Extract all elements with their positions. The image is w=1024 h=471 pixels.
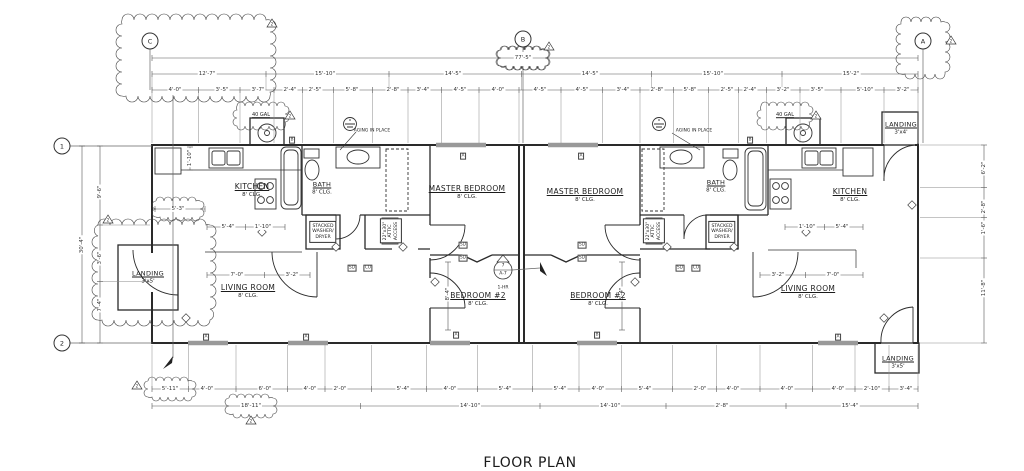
- dimension-label: 12'-7": [198, 71, 217, 77]
- room-landing-top-right-ceiling-note: 3'x4': [885, 130, 917, 136]
- dimension-label: 77'-5": [514, 55, 533, 61]
- dimension-label: 3'-2": [284, 272, 299, 278]
- window-tag: B: [747, 137, 753, 144]
- room-landing-bottom-right-label: LANDING: [882, 355, 914, 363]
- room-master-bedroom-left-ceiling-note: 8' CLG.: [429, 194, 506, 200]
- dimension-label: 4'-0": [442, 386, 457, 392]
- dimension-label: 3'-5": [809, 87, 824, 93]
- dimension-label: 3'-6": [97, 250, 103, 265]
- dimension-label: 5'-8": [682, 87, 697, 93]
- detector-tag: SD: [348, 265, 357, 272]
- room-master-bedroom-right: MASTER BEDROOM8' CLG.: [547, 187, 624, 203]
- dimension-label: 3'-4": [415, 87, 430, 93]
- room-living-room-left: LIVING ROOM8' CLG.: [221, 283, 275, 299]
- room-bath-right: BATH8' CLG.: [706, 179, 726, 194]
- dimension-label: 6'-0": [257, 386, 272, 392]
- grid-bubble-c: C: [142, 33, 159, 50]
- dimension-label: 15'-4": [841, 403, 860, 409]
- dimension-label: 3'-4": [898, 386, 913, 392]
- dimension-label: 15'-10": [314, 71, 336, 77]
- dimension-label: 7'-0": [825, 272, 840, 278]
- room-landing-bottom-right: LANDING3'x5': [882, 355, 914, 370]
- room-kitchen-right-ceiling-note: 8' CLG.: [833, 197, 868, 203]
- dimension-label: 2'-10": [863, 386, 882, 392]
- room-living-room-left-label: LIVING ROOM: [221, 283, 275, 292]
- detector-tag: SD: [459, 255, 468, 262]
- dimension-label: 4'-0": [590, 386, 605, 392]
- dimension-label: 1'-6": [981, 220, 987, 235]
- dimension-label: 4'-0": [490, 87, 505, 93]
- room-kitchen-left: KITCHEN8' CLG.: [235, 182, 270, 198]
- dimension-label: 2'-8": [714, 403, 729, 409]
- dimension-label: 3'-5": [214, 87, 229, 93]
- room-living-room-right: LIVING ROOM8' CLG.: [781, 284, 835, 300]
- dimension-label: 5'-8": [344, 87, 359, 93]
- detector-tag: SD: [676, 265, 685, 272]
- room-bath-right-label: BATH: [706, 179, 726, 187]
- note-40gal-right: 40 GAL: [776, 113, 794, 119]
- dimension-label: 4'-0": [199, 386, 214, 392]
- wall-section-marker-number: 7: [502, 263, 505, 268]
- dimension-label: 5'-11": [161, 386, 180, 392]
- revision-triangle-number: 2: [107, 218, 110, 223]
- dimension-label: 2'-8": [649, 87, 664, 93]
- window-tag: A: [203, 334, 209, 341]
- note-attic-access-right: 22"x30" ATTIC ACCESS: [643, 219, 665, 244]
- room-bedroom2-left: BEDROOM #28' CLG.: [450, 291, 506, 307]
- detector-tag: SD: [578, 242, 587, 249]
- dimension-label: 5'-4": [834, 224, 849, 230]
- dimension-label: 4'-0": [167, 87, 182, 93]
- window-tag: A: [578, 153, 584, 160]
- room-kitchen-left-label: KITCHEN: [235, 182, 270, 191]
- floor-plan-canvas: 77'-5"12'-7"15'-10"14'-5"14'-5"15'-10"15…: [0, 0, 1024, 471]
- dimension-label: 1'-10": [798, 224, 817, 230]
- room-bedroom2-right-ceiling-note: 8' CLG.: [570, 301, 626, 307]
- dimension-label: 5'-4": [220, 224, 235, 230]
- room-bath-left-ceiling-note: 8' CLG.: [312, 190, 332, 196]
- dimension-label: 2'-5": [719, 87, 734, 93]
- dimension-label: 15'-10": [702, 71, 724, 77]
- dimension-label: 2'-0": [332, 386, 347, 392]
- dimension-label: 3'-2": [775, 87, 790, 93]
- note-aging-in-place-right: AGING IN PLACE: [676, 128, 713, 133]
- window-tag: A: [460, 153, 466, 160]
- room-bath-right-ceiling-note: 8' CLG.: [706, 188, 726, 194]
- wall-section-marker-sheet: A-7: [499, 271, 506, 276]
- window-tag: B: [594, 332, 600, 339]
- room-living-room-left-ceiling-note: 8' CLG.: [221, 293, 275, 299]
- dimension-label: 3'-4": [615, 87, 630, 93]
- dimension-label: 14'-5": [581, 71, 600, 77]
- dimension-label: 2'-4": [742, 87, 757, 93]
- room-living-room-right-label: LIVING ROOM: [781, 284, 835, 293]
- room-bath-left: BATH8' CLG.: [312, 181, 332, 196]
- dimension-label: 14'-10": [599, 403, 621, 409]
- room-master-bedroom-left: MASTER BEDROOM8' CLG.: [429, 184, 506, 200]
- dimension-label: 11'-8": [981, 279, 987, 298]
- grid-bubble-b: B: [515, 31, 532, 48]
- room-landing-bottom-right-ceiling-note: 3'x5': [882, 364, 914, 370]
- room-kitchen-right-label: KITCHEN: [833, 187, 868, 196]
- revision-triangle-number: 2: [548, 45, 551, 50]
- room-master-bedroom-right-label: MASTER BEDROOM: [547, 187, 624, 196]
- window-tag: B: [289, 137, 295, 144]
- revision-triangle-number: 2: [289, 114, 292, 119]
- room-landing-left: LANDING3'x5': [132, 270, 164, 285]
- revision-triangle-number: 2: [950, 39, 953, 44]
- note-aging-in-place-left: AGING IN PLACE: [354, 128, 391, 133]
- window-tag: A: [453, 332, 459, 339]
- dimension-label: 5'-3": [170, 206, 185, 212]
- dimension-label: 3'-7": [250, 87, 265, 93]
- dimension-label: 2'-5": [307, 87, 322, 93]
- dimension-label: 5'-4": [395, 386, 410, 392]
- note-40gal-left: 40 GAL: [252, 113, 270, 119]
- window-tag: A: [835, 334, 841, 341]
- dimension-label: 15'-2": [842, 71, 861, 77]
- window-tag: A: [303, 334, 309, 341]
- revision-triangle-number: 2: [250, 419, 253, 424]
- detector-tag: SD: [459, 242, 468, 249]
- detector-tag: CO: [363, 265, 372, 272]
- dimension-label: 18'-11": [240, 403, 262, 409]
- grid-bubble-1: 1: [54, 138, 71, 155]
- room-landing-left-ceiling-note: 3'x5': [132, 279, 164, 285]
- note-washer-dryer-left: STACKED WASHER/ DRYER: [309, 221, 336, 243]
- room-bedroom2-left-ceiling-note: 8' CLG.: [450, 301, 506, 307]
- room-bedroom2-right-label: BEDROOM #2: [570, 291, 626, 300]
- dimension-label: 5'-4": [552, 386, 567, 392]
- revision-triangle-number: 2: [815, 114, 818, 119]
- room-landing-left-label: LANDING: [132, 270, 164, 278]
- dimension-label: 9'-6": [97, 184, 103, 199]
- dimension-label: 2'-0": [692, 386, 707, 392]
- grid-bubble-a: A: [915, 33, 932, 50]
- dimension-label: 2'-8": [385, 87, 400, 93]
- title-block: FLOOR PLAN SCALE: 1/4"=1'-0": [477, 452, 582, 471]
- dimension-label: 5'-4": [497, 386, 512, 392]
- labels-layer: 77'-5"12'-7"15'-10"14'-5"14'-5"15'-10"15…: [0, 0, 1024, 471]
- dimension-label: 14'-5": [444, 71, 463, 77]
- dimension-label: 30'-4": [79, 236, 85, 255]
- room-living-room-right-ceiling-note: 8' CLG.: [781, 294, 835, 300]
- dimension-label: 3'-2": [895, 87, 910, 93]
- plan-title: FLOOR PLAN: [477, 455, 582, 471]
- dimension-label: 4'-0": [830, 386, 845, 392]
- room-bath-left-label: BATH: [312, 181, 332, 189]
- dimension-label: 1'-10": [254, 224, 273, 230]
- room-master-bedroom-right-ceiling-note: 8' CLG.: [547, 197, 624, 203]
- dimension-label: 4'-0": [725, 386, 740, 392]
- revision-triangle-number: 2: [271, 22, 274, 27]
- dimension-label: 4'-0": [779, 386, 794, 392]
- detector-tag: SD: [578, 255, 587, 262]
- detector-tag: CO: [691, 265, 700, 272]
- room-landing-top-right-label: LANDING: [885, 121, 917, 129]
- dimension-label: 2'-4": [282, 87, 297, 93]
- revision-triangle-number: 2: [136, 384, 139, 389]
- room-master-bedroom-left-label: MASTER BEDROOM: [429, 184, 506, 193]
- room-landing-top-right: LANDING3'x4': [885, 121, 917, 136]
- room-kitchen-right: KITCHEN8' CLG.: [833, 187, 868, 203]
- room-kitchen-left-ceiling-note: 8' CLG.: [235, 192, 270, 198]
- dimension-label: 4'-5": [452, 87, 467, 93]
- room-bedroom2-left-label: BEDROOM #2: [450, 291, 506, 300]
- dimension-label: 6'-2": [981, 160, 987, 175]
- dimension-label: 7'-4": [97, 297, 103, 312]
- room-bedroom2-right: BEDROOM #28' CLG.: [570, 291, 626, 307]
- dimension-label: 1'-10": [187, 149, 193, 168]
- dimension-label: 4'-5": [574, 87, 589, 93]
- dimension-label: 5'-4": [637, 386, 652, 392]
- dimension-label: 3'-2": [770, 272, 785, 278]
- note-1hr-firewall: 1-HR: [498, 285, 509, 290]
- dimension-label: 7'-0": [229, 272, 244, 278]
- note-attic-access-left: 22"x30" ATTIC ACCESS: [380, 219, 402, 244]
- dimension-label: 2'-8": [981, 199, 987, 214]
- dimension-label: 4'-0": [302, 386, 317, 392]
- dimension-label: 14'-10": [459, 403, 481, 409]
- grid-bubble-2: 2: [54, 335, 71, 352]
- note-washer-dryer-right: STACKED WASHER/ DRYER: [708, 221, 735, 243]
- dimension-label: 4'-5": [532, 87, 547, 93]
- dimension-label: 5'-10": [856, 87, 875, 93]
